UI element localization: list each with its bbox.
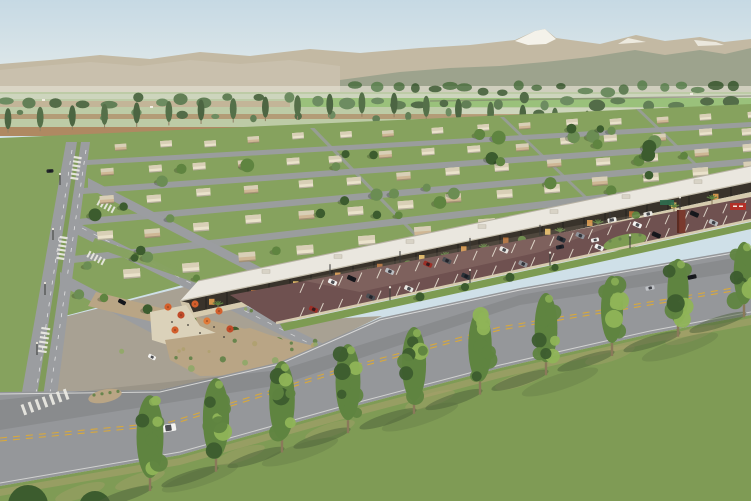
house: [340, 131, 352, 139]
house: [147, 194, 162, 203]
house: [742, 143, 751, 152]
house: [299, 180, 314, 189]
red-sign: [730, 203, 746, 210]
house: [97, 230, 113, 240]
umbrella: [215, 307, 222, 314]
house: [347, 177, 362, 186]
house: [604, 134, 617, 142]
house: [149, 165, 162, 173]
house: [123, 268, 141, 279]
house: [193, 162, 206, 170]
house: [101, 168, 114, 176]
house: [245, 214, 261, 224]
umbrella: [226, 325, 233, 332]
umbrella: [191, 300, 198, 307]
house: [193, 222, 209, 232]
house: [421, 148, 434, 156]
house: [382, 130, 394, 138]
house: [431, 127, 443, 135]
house: [115, 144, 127, 152]
house: [445, 167, 460, 176]
umbrella: [203, 317, 210, 324]
house: [144, 228, 160, 238]
house: [694, 148, 709, 157]
umbrella: [164, 303, 171, 310]
house: [699, 128, 712, 136]
house: [204, 140, 216, 148]
house: [292, 132, 304, 140]
house: [657, 116, 669, 124]
house: [398, 200, 414, 210]
house: [592, 176, 608, 186]
house: [748, 111, 751, 119]
scene-svg: [0, 0, 751, 501]
umbrella: [171, 326, 178, 333]
house: [238, 251, 256, 262]
house: [182, 262, 200, 273]
viewport: [0, 0, 751, 501]
monument-pylon: [677, 210, 686, 233]
house: [596, 157, 611, 166]
house: [497, 189, 513, 199]
house: [547, 159, 562, 168]
house: [160, 140, 172, 148]
house: [610, 118, 622, 126]
house: [286, 157, 299, 165]
house: [244, 185, 259, 194]
house: [296, 245, 314, 256]
house: [196, 188, 211, 197]
car: [46, 169, 53, 173]
house: [396, 172, 411, 181]
house: [247, 136, 259, 144]
house: [519, 122, 531, 130]
house: [516, 143, 529, 151]
house: [467, 145, 480, 153]
house: [379, 150, 392, 158]
house: [298, 210, 314, 220]
umbrella: [177, 311, 184, 318]
house: [99, 195, 114, 204]
house: [699, 114, 711, 122]
house: [742, 128, 751, 136]
house: [347, 206, 363, 216]
storefront-sign: [660, 200, 674, 205]
